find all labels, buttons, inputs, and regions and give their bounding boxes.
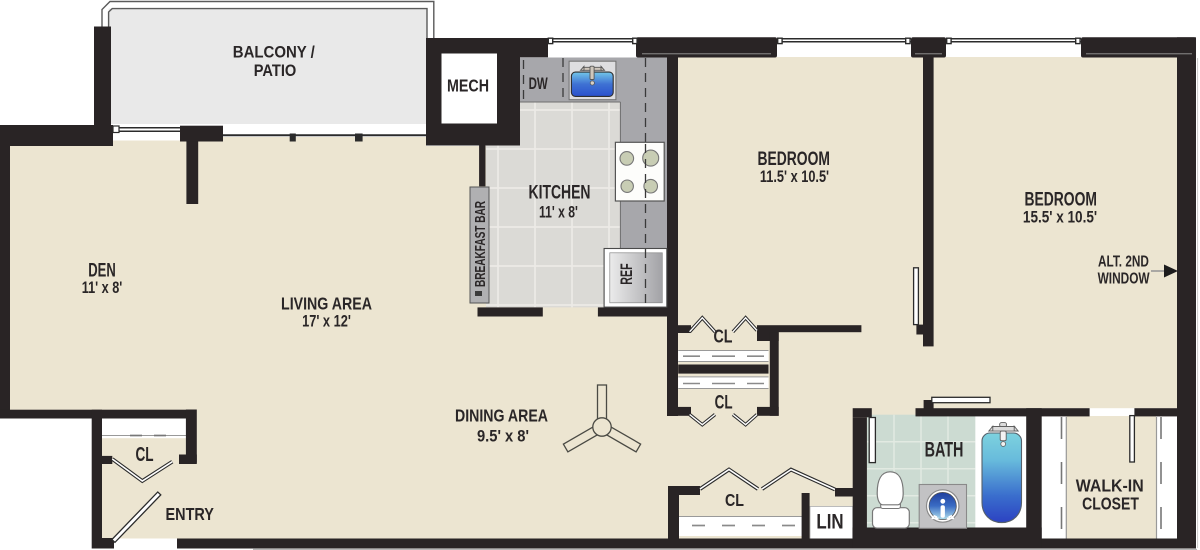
svg-text:WINDOW: WINDOW — [1098, 270, 1151, 287]
svg-text:LIVING AREA: LIVING AREA — [281, 294, 372, 314]
svg-text:CL: CL — [715, 392, 733, 413]
svg-text:9.5' x 8': 9.5' x 8' — [477, 428, 529, 446]
svg-text:ALT. 2ND: ALT. 2ND — [1098, 253, 1149, 270]
svg-text:CL: CL — [714, 326, 733, 347]
svg-text:BATH: BATH — [925, 438, 964, 461]
svg-text:WALK-IN: WALK-IN — [1076, 476, 1144, 496]
svg-text:BALCONY /: BALCONY / — [233, 44, 316, 62]
svg-text:11.5' x 10.5': 11.5' x 10.5' — [760, 167, 829, 186]
svg-text:BEDROOM: BEDROOM — [757, 148, 829, 170]
svg-text:BEDROOM: BEDROOM — [1024, 188, 1096, 210]
svg-text:DW: DW — [529, 75, 549, 94]
svg-text:17' x 12': 17' x 12' — [302, 313, 351, 331]
svg-text:PATIO: PATIO — [254, 62, 296, 80]
svg-text:BREAKFAST BAR: BREAKFAST BAR — [472, 201, 488, 287]
svg-text:LIN: LIN — [816, 511, 843, 534]
svg-text:REF: REF — [618, 263, 637, 285]
svg-text:11' x 8': 11' x 8' — [539, 204, 578, 222]
svg-text:15.5' x 10.5': 15.5' x 10.5' — [1023, 208, 1097, 227]
svg-text:MECH: MECH — [447, 77, 489, 96]
svg-text:KITCHEN: KITCHEN — [529, 181, 591, 203]
svg-text:CL: CL — [135, 443, 153, 465]
svg-text:CLOSET: CLOSET — [1082, 495, 1139, 514]
svg-text:DINING AREA: DINING AREA — [455, 406, 548, 426]
svg-text:CL: CL — [725, 490, 744, 510]
svg-text:11' x 8': 11' x 8' — [82, 278, 123, 297]
svg-text:ENTRY: ENTRY — [166, 505, 214, 525]
